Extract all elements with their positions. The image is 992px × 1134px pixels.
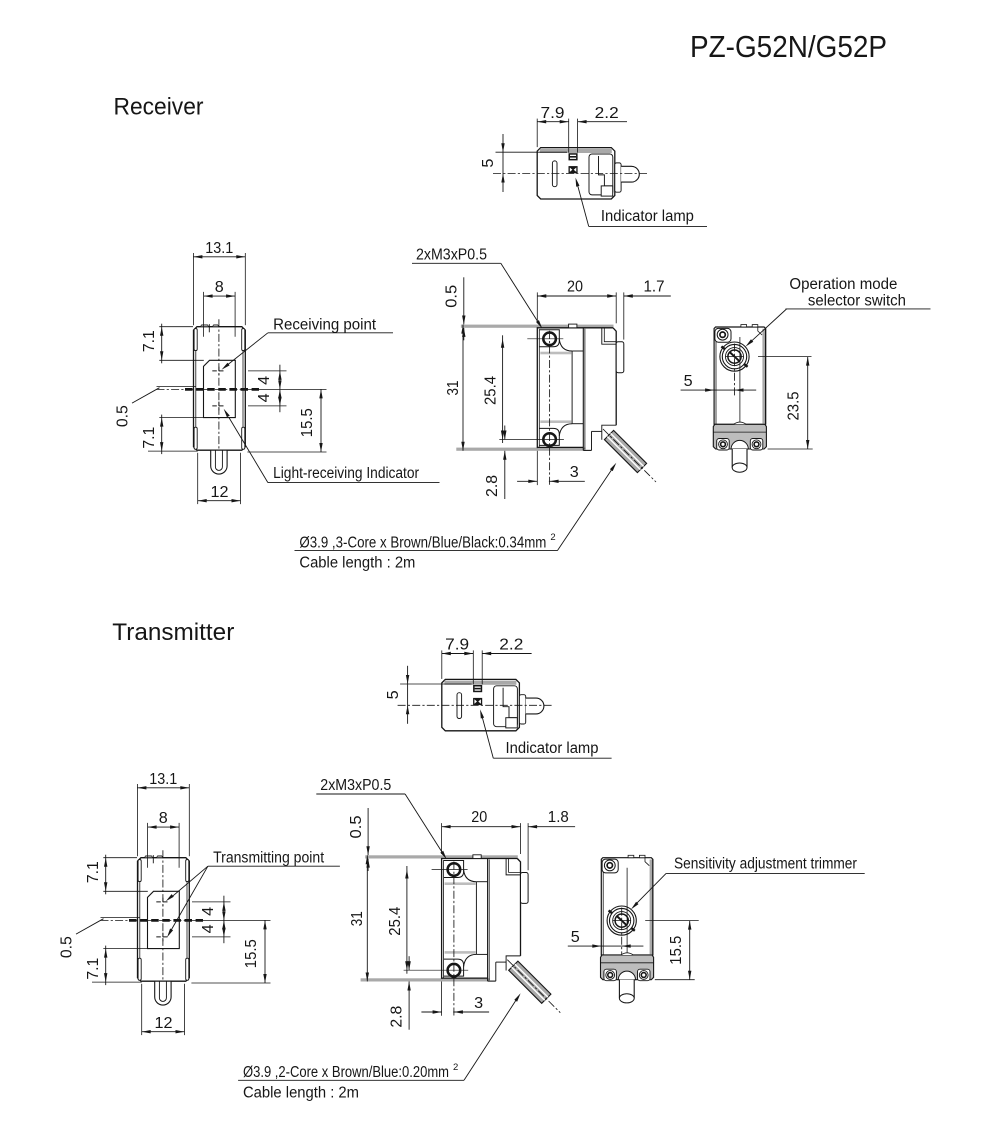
svg-text:2.2: 2.2: [595, 105, 619, 122]
svg-text:PZ-G52N/G52P: PZ-G52N/G52P: [690, 29, 887, 64]
svg-text:15.5: 15.5: [243, 939, 260, 968]
svg-text:15.5: 15.5: [668, 936, 685, 965]
svg-text:13.1: 13.1: [149, 771, 177, 788]
svg-text:0.5: 0.5: [444, 285, 461, 308]
svg-text:2.2: 2.2: [499, 637, 523, 654]
svg-text:selector switch: selector switch: [808, 293, 906, 310]
svg-text:7.1: 7.1: [85, 861, 102, 883]
svg-text:3: 3: [474, 995, 483, 1012]
svg-text:2.8: 2.8: [484, 475, 501, 497]
svg-text:Receiver: Receiver: [114, 94, 204, 121]
svg-text:2xM3xP0.5: 2xM3xP0.5: [416, 247, 487, 264]
svg-text:4: 4: [256, 393, 273, 403]
svg-text:20: 20: [471, 809, 487, 826]
svg-text:31: 31: [349, 911, 366, 926]
svg-text:7.1: 7.1: [141, 427, 158, 449]
svg-text:25.4: 25.4: [483, 376, 500, 405]
svg-text:12: 12: [155, 1015, 173, 1032]
svg-text:8: 8: [159, 810, 168, 827]
svg-text:25.4: 25.4: [387, 906, 404, 935]
svg-text:2: 2: [550, 532, 555, 543]
svg-text:Operation mode: Operation mode: [789, 276, 897, 293]
svg-text:5: 5: [480, 159, 497, 168]
svg-text:1.8: 1.8: [548, 809, 569, 826]
svg-text:0.5: 0.5: [348, 816, 365, 839]
svg-text:0.5: 0.5: [115, 405, 132, 427]
svg-text:31: 31: [445, 381, 462, 396]
svg-text:20: 20: [567, 279, 583, 296]
svg-text:Ø3.9 ,2-Core x Brown/Blue:0.20: Ø3.9 ,2-Core x Brown/Blue:0.20mm: [243, 1064, 449, 1081]
svg-text:Ø3.9 ,3-Core x Brown/Blue/Blac: Ø3.9 ,3-Core x Brown/Blue/Black:0.34mm: [299, 534, 546, 551]
svg-text:7.1: 7.1: [85, 958, 102, 980]
svg-text:0.5: 0.5: [59, 936, 76, 958]
svg-text:1.7: 1.7: [644, 279, 665, 296]
svg-text:7.1: 7.1: [141, 330, 158, 352]
svg-text:2xM3xP0.5: 2xM3xP0.5: [320, 777, 391, 794]
svg-text:3: 3: [570, 464, 579, 481]
svg-text:Sensitivity adjustment trimmer: Sensitivity adjustment trimmer: [674, 856, 857, 873]
svg-text:Indicator lamp: Indicator lamp: [601, 208, 694, 225]
svg-text:13.1: 13.1: [205, 240, 233, 257]
svg-text:8: 8: [215, 279, 224, 296]
svg-text:2.8: 2.8: [388, 1006, 405, 1028]
svg-text:23.5: 23.5: [786, 392, 803, 421]
svg-text:5: 5: [385, 690, 402, 699]
svg-text:Light-receiving Indicator: Light-receiving Indicator: [273, 465, 419, 482]
svg-text:5: 5: [684, 373, 693, 390]
svg-text:4: 4: [256, 375, 273, 385]
svg-text:Indicator lamp: Indicator lamp: [506, 740, 599, 757]
svg-text:4: 4: [200, 906, 217, 916]
svg-text:7.9: 7.9: [541, 105, 565, 122]
svg-text:7.9: 7.9: [445, 637, 469, 654]
svg-text:12: 12: [211, 484, 229, 501]
svg-text:15.5: 15.5: [299, 408, 316, 437]
svg-text:5: 5: [571, 929, 580, 946]
svg-text:2: 2: [453, 1062, 458, 1073]
svg-text:4: 4: [200, 924, 217, 934]
svg-text:Transmitter: Transmitter: [112, 619, 234, 646]
svg-text:Receiving point: Receiving point: [273, 316, 377, 333]
svg-text:Cable length : 2m: Cable length : 2m: [299, 555, 415, 572]
svg-text:Transmitting point: Transmitting point: [213, 850, 325, 867]
svg-text:Cable length : 2m: Cable length : 2m: [243, 1084, 359, 1101]
